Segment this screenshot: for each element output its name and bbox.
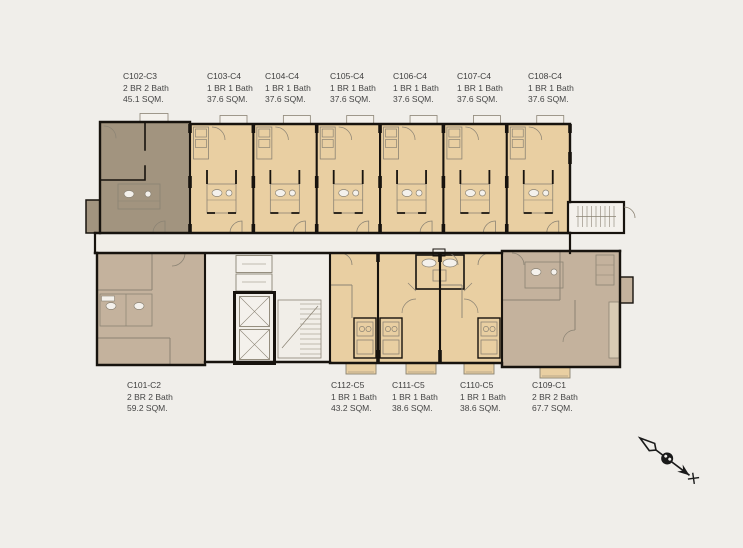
unit-type: 1 BR 1 Bath (457, 83, 503, 95)
unit-area: 37.6 SQM. (528, 94, 574, 106)
unit-area: 37.6 SQM. (393, 94, 439, 106)
unit-type: 1 BR 1 Bath (330, 83, 376, 95)
unit-label-c111: C111-C5 1 BR 1 Bath 38.6 SQM. (392, 380, 438, 415)
unit-type: 1 BR 1 Bath (392, 392, 438, 404)
unit-code: C108-C4 (528, 71, 574, 83)
unit-type: 1 BR 1 Bath (331, 392, 377, 404)
unit-type: 1 BR 1 Bath (265, 83, 311, 95)
floorplan-canvas: C102-C3 2 BR 2 Bath 45.1 SQM. C103-C4 1 … (0, 0, 743, 548)
unit-label-c109: C109-C1 2 BR 2 Bath 67.7 SQM. (532, 380, 578, 415)
unit-code: C105-C4 (330, 71, 376, 83)
unit-code: C103-C4 (207, 71, 253, 83)
unit-type: 1 BR 1 Bath (528, 83, 574, 95)
unit-area: 37.6 SQM. (457, 94, 503, 106)
unit-code: C102-C3 (123, 71, 169, 83)
unit-type: 1 BR 1 Bath (460, 392, 506, 404)
unit-type: 2 BR 2 Bath (127, 392, 173, 404)
north-arrow-icon (636, 433, 700, 485)
unit-code: C106-C4 (393, 71, 439, 83)
unit-label-c108: C108-C4 1 BR 1 Bath 37.6 SQM. (528, 71, 574, 106)
unit-code: C101-C2 (127, 380, 173, 392)
unit-area: 38.6 SQM. (460, 403, 506, 415)
lift-2 (240, 330, 270, 360)
unit-area: 38.6 SQM. (392, 403, 438, 415)
unit-area: 67.7 SQM. (532, 403, 578, 415)
unit-area: 37.6 SQM. (207, 94, 253, 106)
unit-type: 1 BR 1 Bath (207, 83, 253, 95)
unit-label-c103: C103-C4 1 BR 1 Bath 37.6 SQM. (207, 71, 253, 106)
unit-code: C110-C5 (460, 380, 506, 392)
unit-code: C104-C4 (265, 71, 311, 83)
unit-area: 45.1 SQM. (123, 94, 169, 106)
unit-label-c106: C106-C4 1 BR 1 Bath 37.6 SQM. (393, 71, 439, 106)
unit-code: C112-C5 (331, 380, 377, 392)
unit-label-c104: C104-C4 1 BR 1 Bath 37.6 SQM. (265, 71, 311, 106)
unit-area: 37.6 SQM. (330, 94, 376, 106)
unit-type: 2 BR 2 Bath (123, 83, 169, 95)
unit-type: 1 BR 1 Bath (393, 83, 439, 95)
unit-label-c110: C110-C5 1 BR 1 Bath 38.6 SQM. (460, 380, 506, 415)
unit-label-c107: C107-C4 1 BR 1 Bath 37.6 SQM. (457, 71, 503, 106)
unit-type: 2 BR 2 Bath (532, 392, 578, 404)
unit-area: 43.2 SQM. (331, 403, 377, 415)
unit-code: C109-C1 (532, 380, 578, 392)
fire-stair-wing (568, 202, 635, 233)
unit-label-c102: C102-C3 2 BR 2 Bath 45.1 SQM. (123, 71, 169, 106)
unit-code: C111-C5 (392, 380, 438, 392)
unit-label-c112: C112-C5 1 BR 1 Bath 43.2 SQM. (331, 380, 377, 415)
unit-code: C107-C4 (457, 71, 503, 83)
unit-area: 37.6 SQM. (265, 94, 311, 106)
unit-label-c101: C101-C2 2 BR 2 Bath 59.2 SQM. (127, 380, 173, 415)
unit-area: 59.2 SQM. (127, 403, 173, 415)
unit-label-c105: C105-C4 1 BR 1 Bath 37.6 SQM. (330, 71, 376, 106)
lift-1 (240, 297, 270, 327)
